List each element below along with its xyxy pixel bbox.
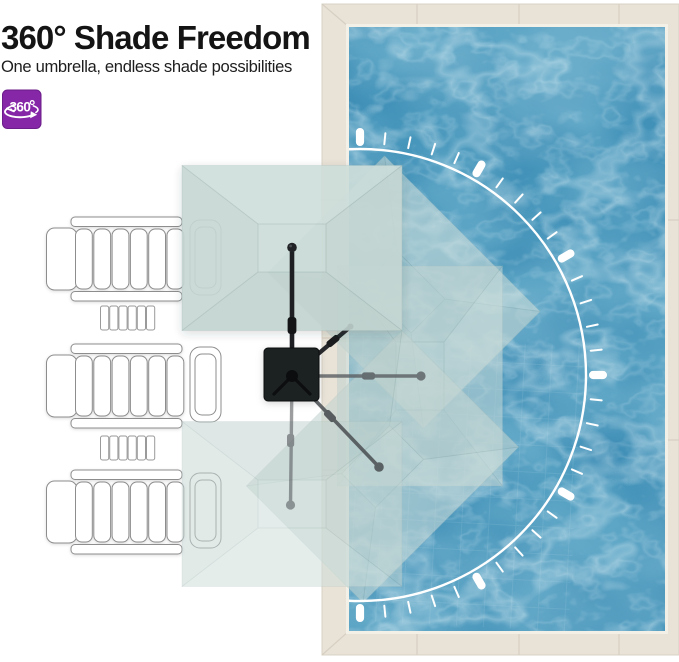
svg-text:One umbrella, endless shade po: One umbrella, endless shade possibilitie… [1, 57, 292, 76]
svg-text:360° Shade Freedom: 360° Shade Freedom [1, 19, 310, 56]
svg-text:360: 360 [10, 100, 31, 115]
